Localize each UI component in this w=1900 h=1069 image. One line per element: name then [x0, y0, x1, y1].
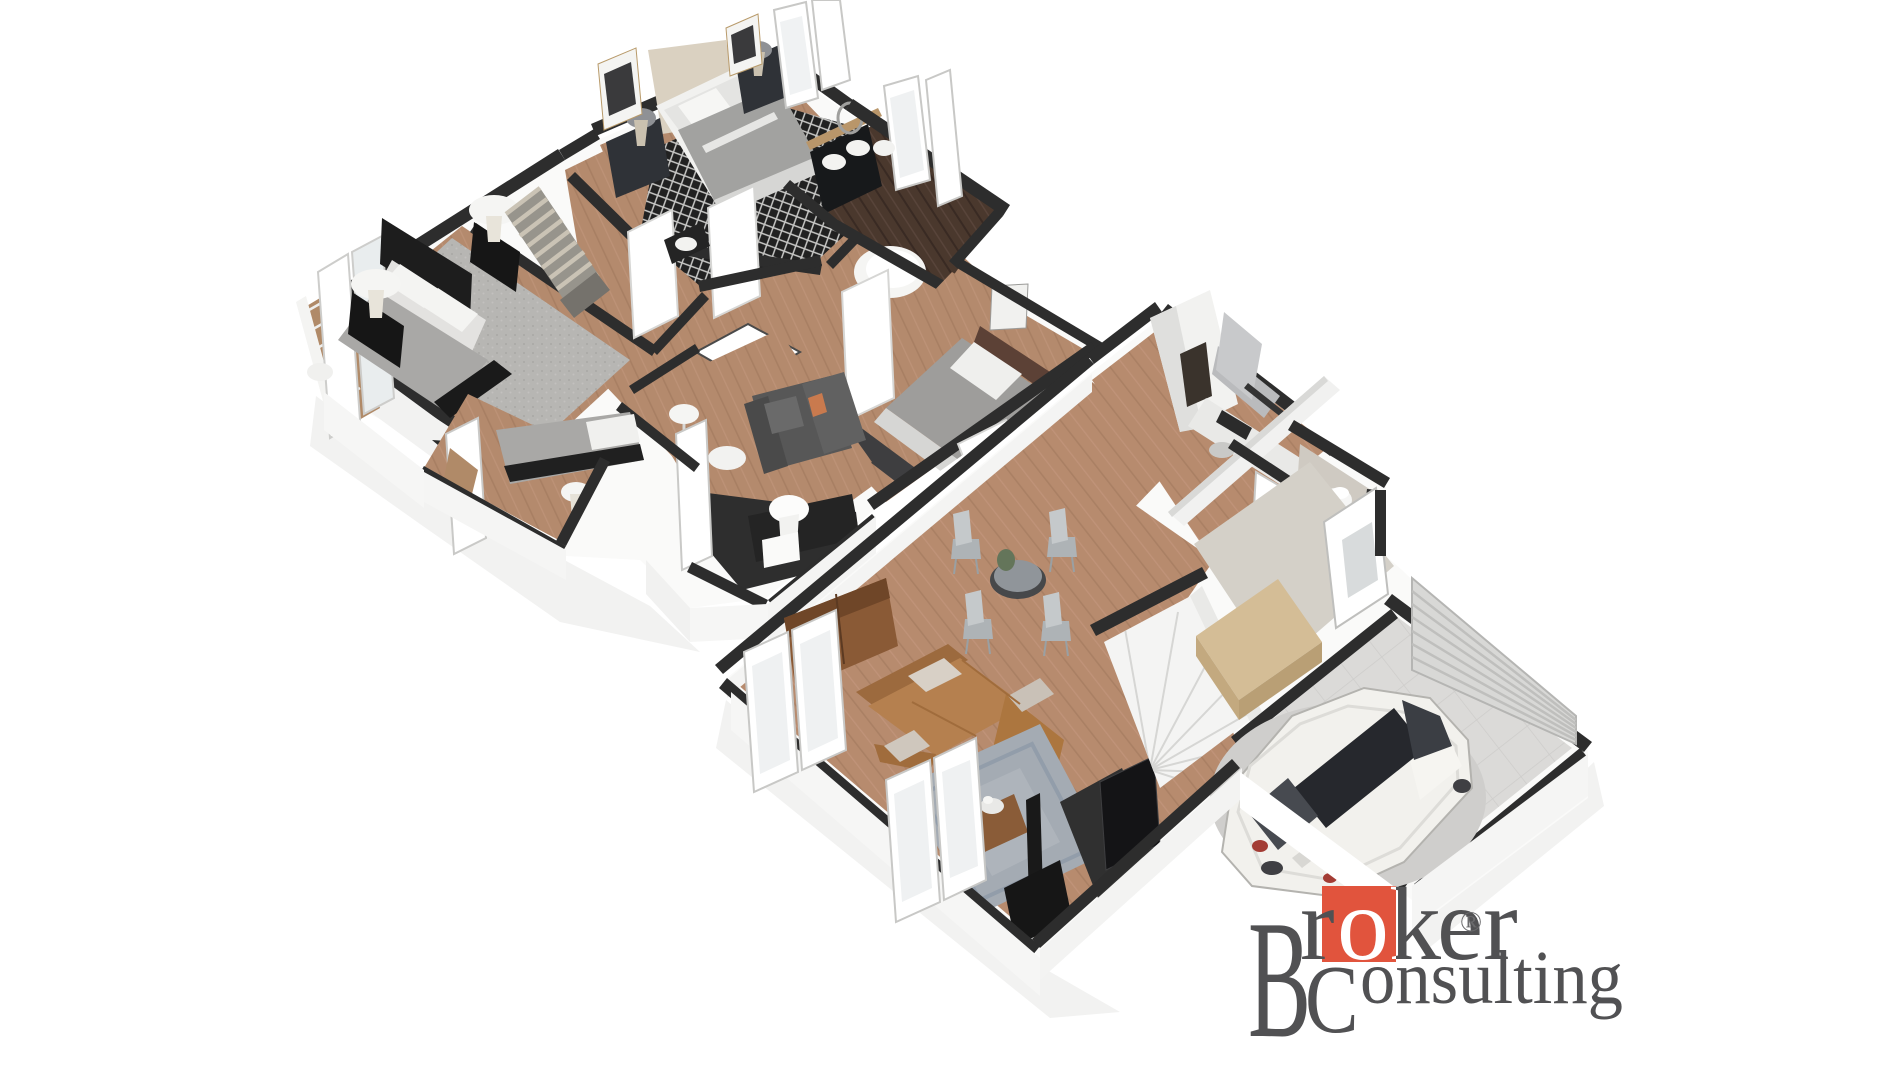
svg-text:®: ® [1460, 906, 1482, 938]
svg-text:C: C [1305, 946, 1359, 1054]
svg-text:onsulting: onsulting [1360, 936, 1623, 1020]
